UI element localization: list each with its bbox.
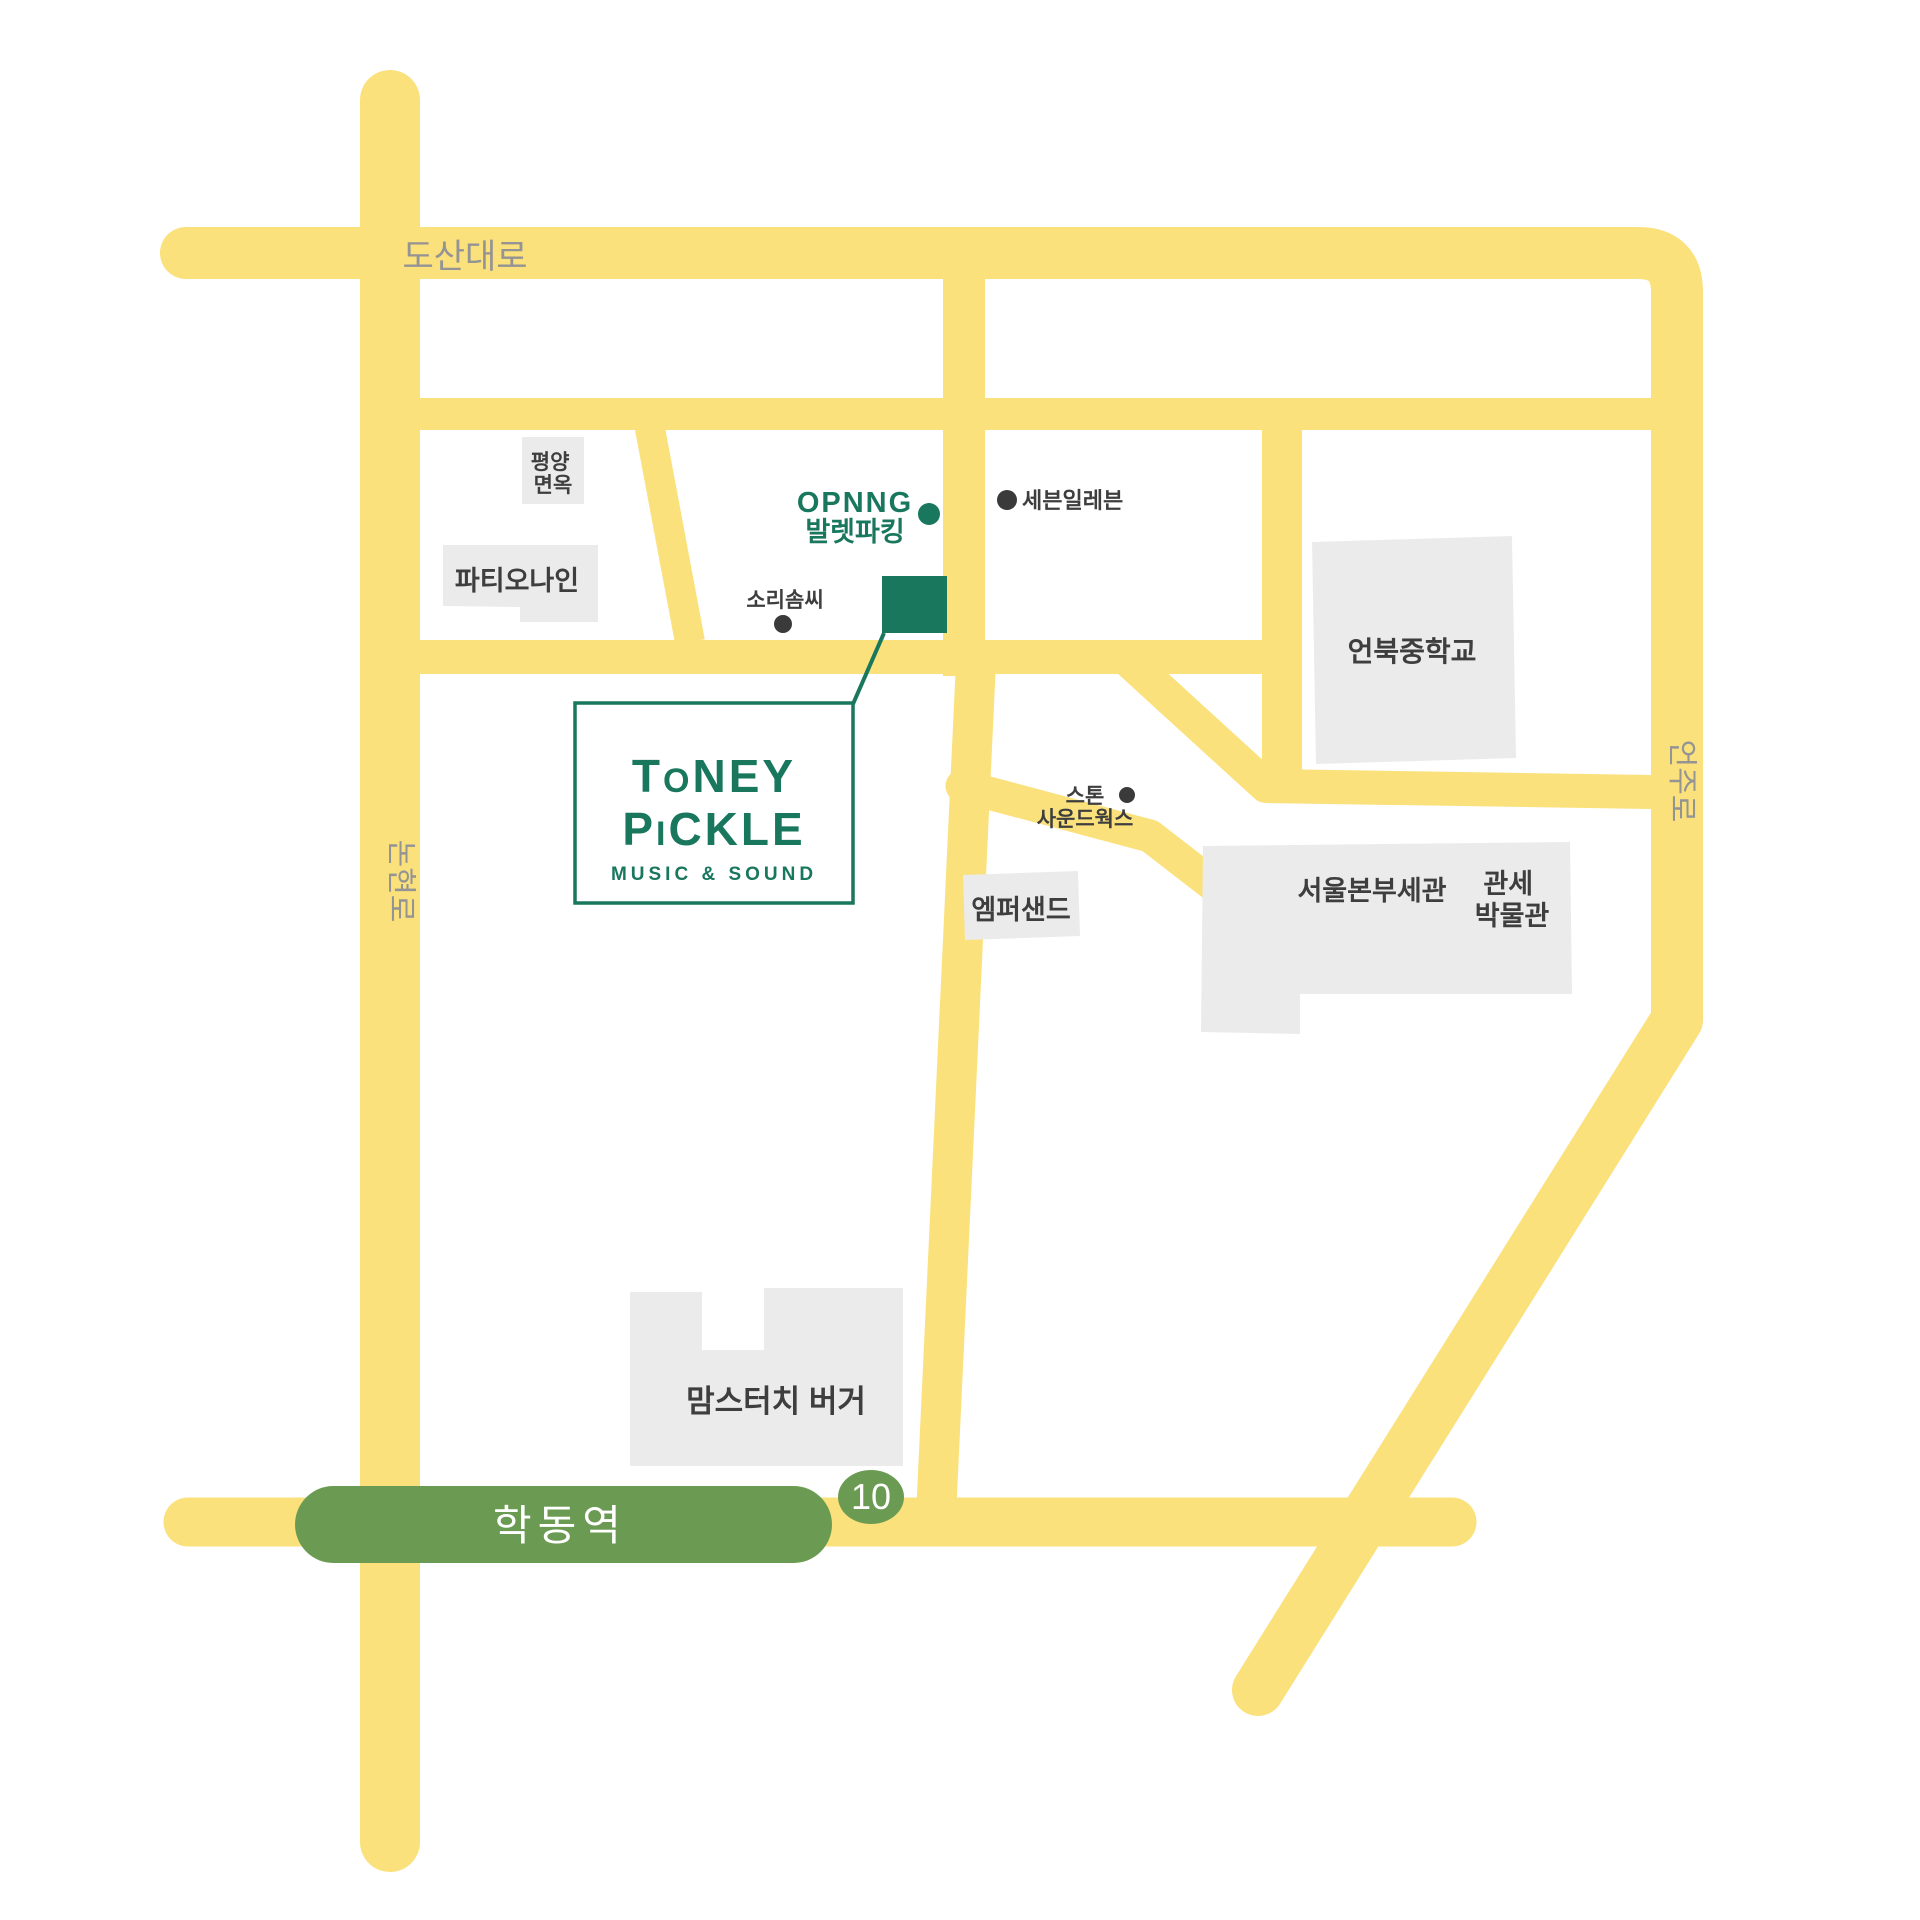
logo-line2-ckle: CKLE [668,803,805,855]
label-pyeongyang-line2: 면옥 [534,474,573,497]
label-valet-parking: 발렛파킹 [805,517,904,547]
location-marker [882,576,947,633]
label-eonbuk-middle-school: 언북중학교 [1348,636,1477,667]
seven-eleven-dot [997,490,1017,510]
location-map: 도산대로 논현로 언주로 평양 면옥 파티오나인 소리솜씨 세븐일레븐 언북중학… [0,0,1920,1920]
label-ampersand: 엠퍼샌드 [971,895,1070,925]
label-sorisomssi: 소리솜씨 [746,589,823,612]
exit-10-number: 10 [851,1476,891,1517]
label-opnng: OPNNG [797,487,913,519]
sorisomssi-dot [774,615,792,633]
logo-line2-p: P [622,803,656,855]
label-customs-museum-line2: 박물관 [1475,901,1550,931]
building-momstouch [630,1288,903,1466]
label-stone-line1: 스톤 [1066,785,1105,808]
label-pyeongyang: 평양 면옥 [531,451,575,497]
road-label-dosandaero: 도산대로 [402,238,527,276]
label-customs-museum-line1: 관세 [1483,869,1533,899]
label-momstouch: 맘스터치 버거 [686,1384,866,1419]
logo-line2-i: I [656,815,668,853]
stone-dot [1119,787,1135,803]
road-label-nonhyeonro: 논현로 [384,840,417,923]
label-patio-nine: 파티오나인 [455,566,579,596]
logo-line1: TONEY [632,750,796,802]
logo-line1-ney: NEY [692,750,796,802]
label-seven-eleven: 세븐일레븐 [1022,488,1123,513]
label-hakdong-station: 학동역 [493,1502,627,1549]
map-canvas: 도산대로 논현로 언주로 평양 면옥 파티오나인 소리솜씨 세븐일레븐 언북중학… [0,0,1920,1920]
road-label-eonjuro: 언주로 [1665,740,1698,823]
label-stone-line2: 사운드웍스 [1037,808,1134,831]
road-pyeongyang-diagonal [648,418,690,642]
logo-subtitle: MUSIC & SOUND [611,864,817,885]
valet-dot [918,503,940,525]
label-seoul-customs: 서울본부세관 [1297,876,1446,906]
label-pyeongyang-line1: 평양 [531,451,570,474]
logo-line1-o: O [663,762,692,800]
logo-line2: PICKLE [622,803,805,855]
logo-line1-t: T [632,750,663,802]
